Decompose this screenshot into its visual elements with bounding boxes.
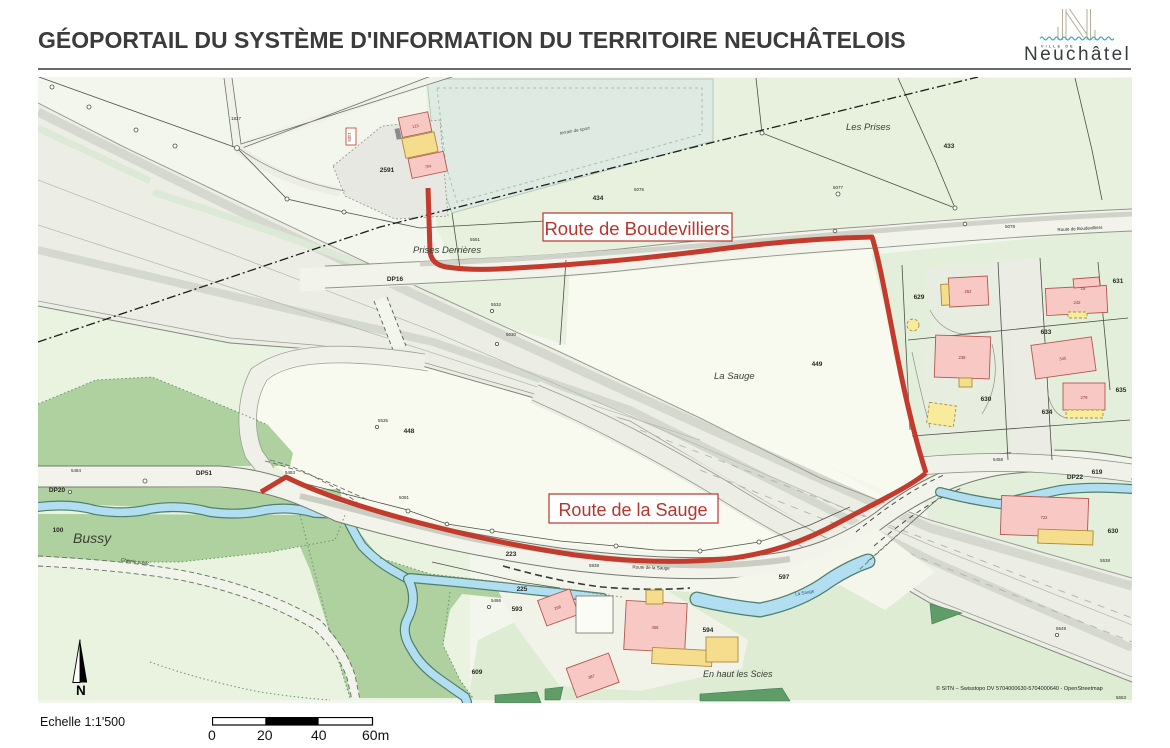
svg-text:Prises Derrières: Prises Derrières — [413, 245, 481, 256]
svg-text:629: 629 — [914, 294, 925, 301]
svg-text:1405: 1405 — [347, 132, 352, 142]
svg-text:Route de Boudevilliers: Route de Boudevilliers — [544, 218, 729, 239]
svg-text:433: 433 — [944, 143, 955, 150]
svg-text:619: 619 — [1092, 469, 1103, 476]
svg-text:5653: 5653 — [1116, 695, 1127, 700]
svg-text:Route de la Sauge: Route de la Sauge — [558, 500, 707, 520]
svg-text:633: 633 — [1041, 329, 1052, 336]
svg-text:5483: 5483 — [285, 470, 296, 475]
svg-text:5549: 5549 — [1056, 626, 1067, 631]
svg-text:5538: 5538 — [1100, 558, 1111, 563]
svg-text:631: 631 — [1113, 278, 1124, 285]
svg-text:593: 593 — [512, 606, 523, 613]
svg-text:634: 634 — [1042, 409, 1053, 416]
svg-text:449: 449 — [812, 361, 823, 368]
svg-text:La Sauge: La Sauge — [714, 371, 755, 382]
svg-text:597: 597 — [779, 574, 790, 581]
svg-text:5486: 5486 — [491, 598, 502, 603]
svg-text:5551: 5551 — [470, 237, 481, 242]
svg-text:366: 366 — [652, 625, 660, 630]
svg-text:DP20: DP20 — [49, 487, 66, 494]
svg-text:16: 16 — [1081, 286, 1086, 291]
svg-text:DP22: DP22 — [1067, 474, 1084, 481]
svg-text:434: 434 — [593, 195, 604, 202]
svg-text:Neuchâtel: Neuchâtel — [1024, 44, 1131, 65]
svg-text:1827: 1827 — [231, 116, 242, 121]
svg-text:345: 345 — [1059, 355, 1067, 361]
svg-text:242: 242 — [1074, 300, 1082, 305]
svg-text:252: 252 — [965, 289, 973, 294]
svg-text:5081: 5081 — [399, 495, 410, 500]
svg-text:238: 238 — [959, 355, 967, 360]
svg-text:5030: 5030 — [506, 332, 517, 337]
svg-text:100: 100 — [53, 527, 64, 534]
svg-text:594: 594 — [703, 627, 714, 634]
svg-text:5077: 5077 — [833, 185, 844, 190]
svg-text:279: 279 — [1081, 395, 1089, 400]
svg-text:223: 223 — [506, 551, 517, 558]
svg-text:5458: 5458 — [993, 457, 1004, 462]
svg-text:722: 722 — [1041, 515, 1049, 520]
svg-text:5076: 5076 — [634, 187, 645, 192]
svg-text:© SITN – Swisstopo DV 57040006: © SITN – Swisstopo DV 5704000630-5704000… — [936, 685, 1103, 692]
svg-text:630: 630 — [981, 396, 992, 403]
svg-text:5484: 5484 — [71, 468, 82, 473]
svg-text:Bussy: Bussy — [73, 530, 112, 546]
svg-text:609: 609 — [472, 669, 483, 676]
svg-text:N: N — [76, 683, 86, 698]
svg-text:5532: 5532 — [491, 302, 502, 307]
svg-text:5938: 5938 — [589, 563, 600, 568]
svg-text:635: 635 — [1116, 387, 1127, 394]
svg-text:2591: 2591 — [380, 167, 395, 174]
svg-text:Les Prises: Les Prises — [846, 122, 891, 133]
svg-text:DP16: DP16 — [387, 276, 404, 283]
svg-text:5078: 5078 — [1005, 224, 1016, 229]
svg-text:En haut les Scies: En haut les Scies — [703, 669, 773, 679]
svg-text:DP51: DP51 — [196, 470, 213, 477]
svg-text:630: 630 — [1108, 528, 1119, 535]
svg-text:448: 448 — [404, 428, 415, 435]
svg-text:5535: 5535 — [378, 418, 389, 423]
svg-text:225: 225 — [517, 586, 528, 593]
